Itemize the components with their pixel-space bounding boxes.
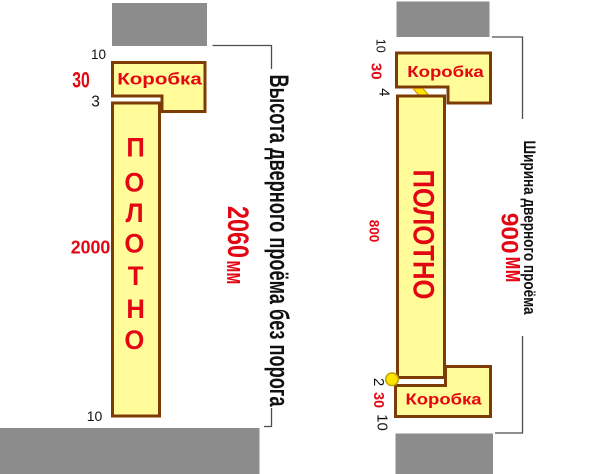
svg-text:Коробка: Коробка xyxy=(407,64,484,81)
svg-text:Н: Н xyxy=(126,294,145,325)
svg-text:800: 800 xyxy=(367,220,382,243)
svg-text:Высота дверного проёма без пор: Высота дверного проёма без порога xyxy=(263,75,294,408)
svg-text:Т: Т xyxy=(128,261,144,292)
svg-text:Л: Л xyxy=(126,198,144,229)
svg-text:О: О xyxy=(124,228,144,259)
svg-text:мм: мм xyxy=(221,260,247,284)
svg-text:30: 30 xyxy=(370,392,386,408)
svg-text:2: 2 xyxy=(370,378,387,386)
svg-text:2060: 2060 xyxy=(221,206,253,258)
svg-text:П: П xyxy=(126,132,144,163)
svg-text:О: О xyxy=(124,167,144,198)
svg-text:Коробка: Коробка xyxy=(117,70,202,89)
svg-text:10: 10 xyxy=(91,47,106,62)
svg-text:30: 30 xyxy=(368,63,385,80)
svg-text:900: 900 xyxy=(496,213,523,254)
svg-text:мм: мм xyxy=(500,257,529,283)
svg-text:2000: 2000 xyxy=(71,238,111,258)
svg-text:Коробка: Коробка xyxy=(406,391,482,408)
svg-text:3: 3 xyxy=(91,94,100,111)
svg-text:10: 10 xyxy=(87,408,103,424)
svg-text:О: О xyxy=(124,325,144,356)
svg-text:10: 10 xyxy=(374,414,391,431)
svg-text:ПОЛОТНО: ПОЛОТНО xyxy=(407,170,441,300)
svg-text:30: 30 xyxy=(72,68,90,93)
svg-text:4: 4 xyxy=(376,88,393,96)
svg-text:10: 10 xyxy=(374,39,388,53)
